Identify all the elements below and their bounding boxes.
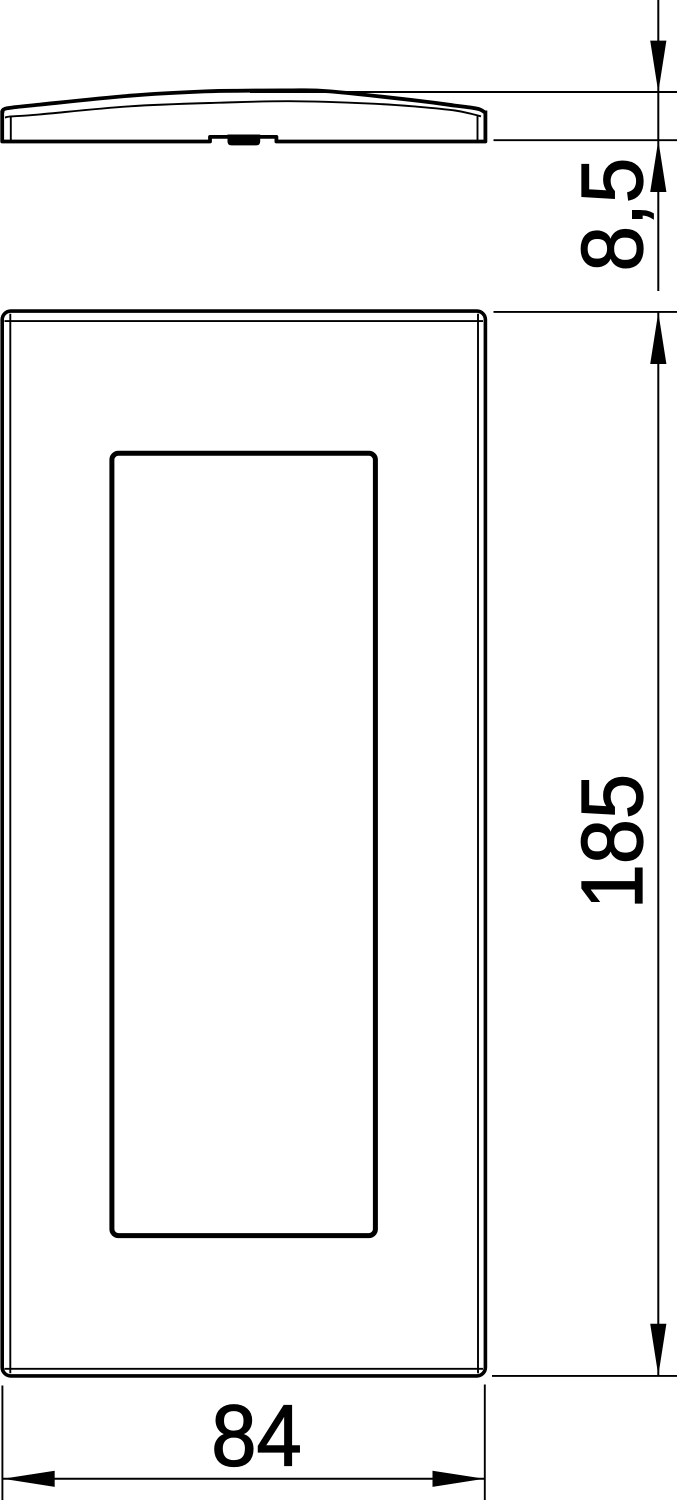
svg-text:185: 185 [564,774,661,909]
svg-text:84: 84 [211,1388,302,1485]
svg-text:8,5: 8,5 [564,158,661,272]
